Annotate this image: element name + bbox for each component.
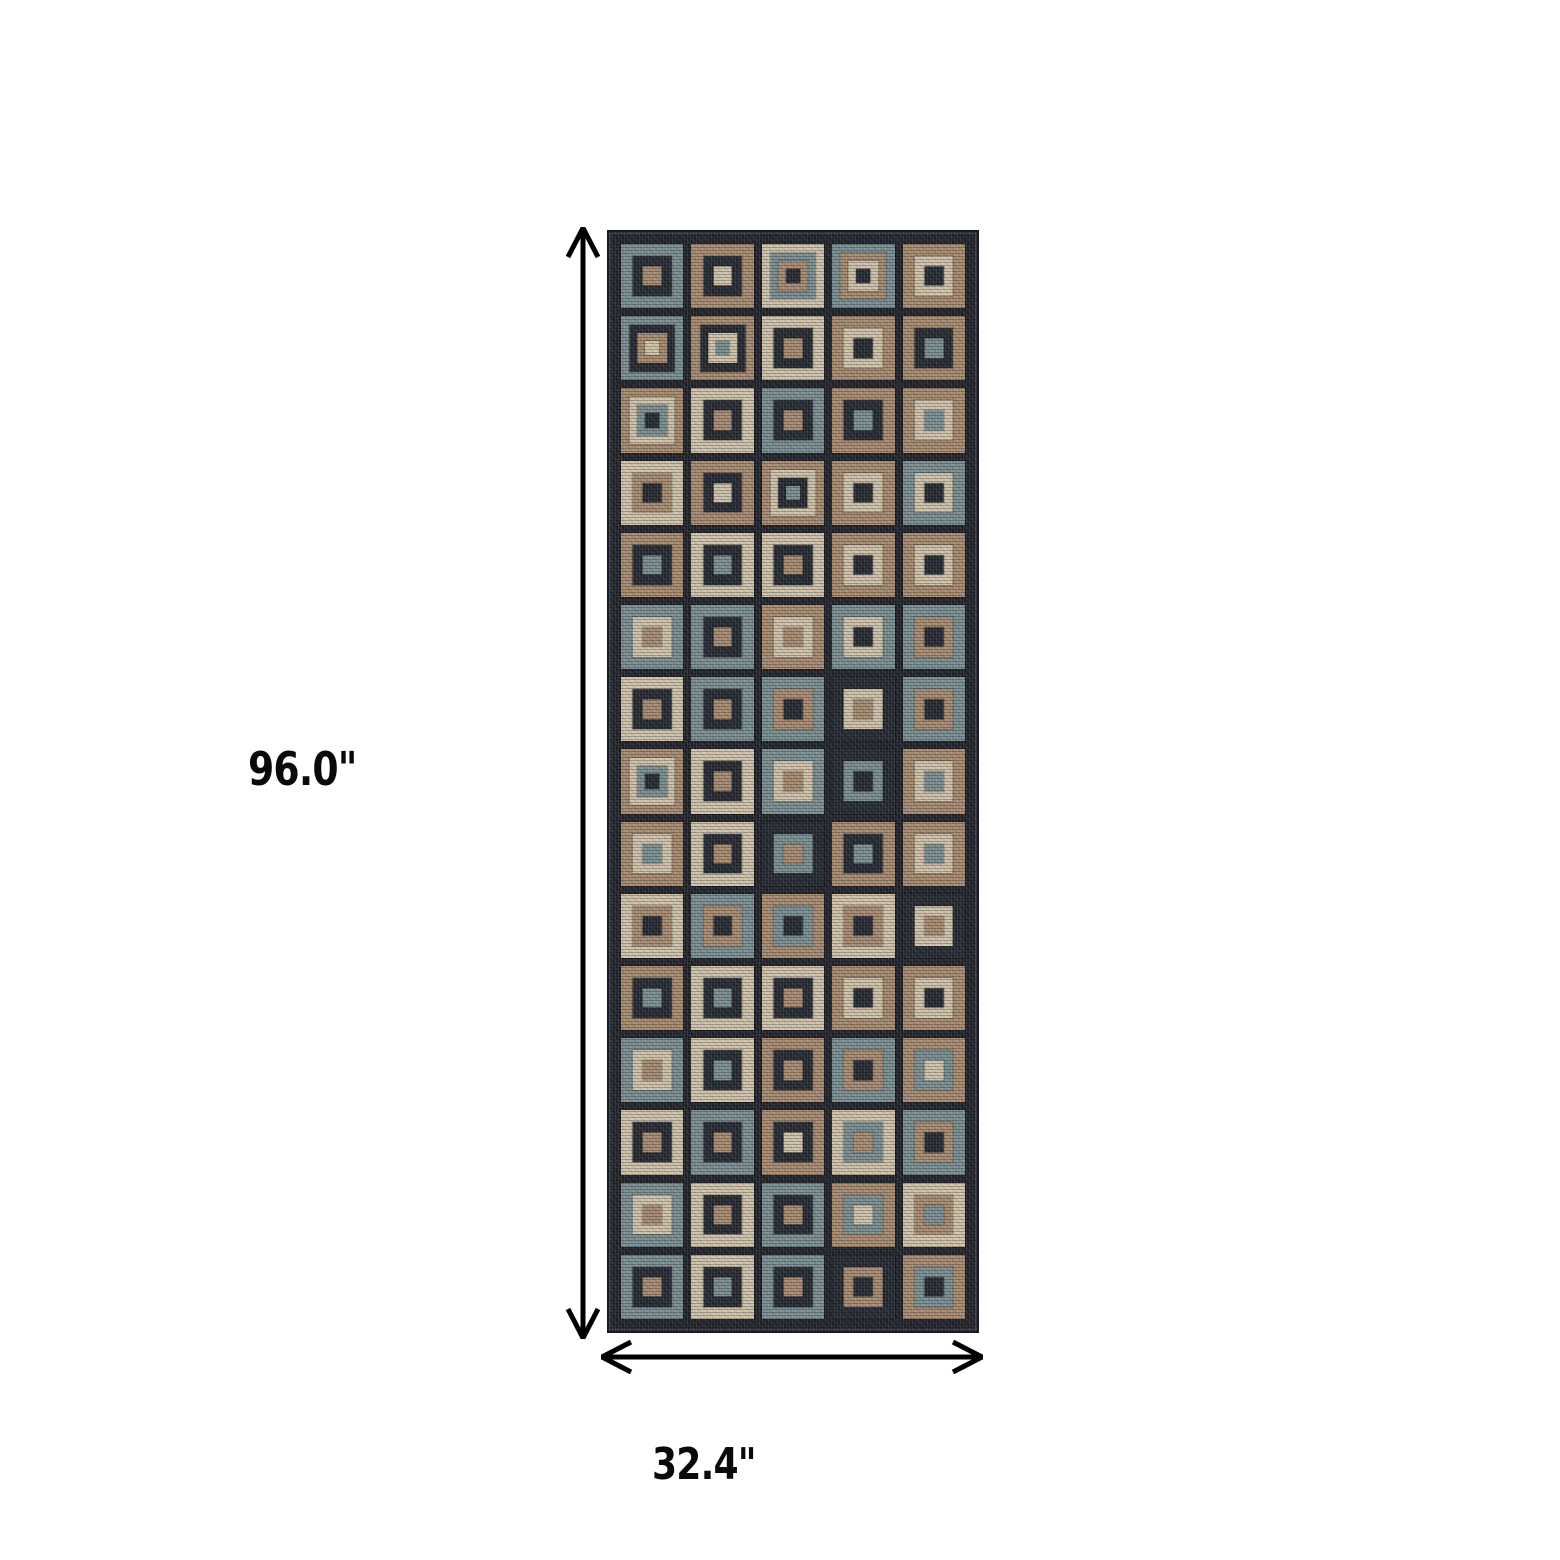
- rug-cell: [691, 749, 753, 813]
- rug-cell: [691, 244, 753, 308]
- rug-cell-inner-square: [924, 1133, 943, 1152]
- rug-cell: [832, 1255, 894, 1319]
- rug-cell: [691, 1038, 753, 1102]
- rug-cell-inner-square: [924, 1277, 943, 1296]
- rug-cell: [903, 677, 965, 741]
- rug-cell: [691, 1183, 753, 1247]
- rug-cell: [832, 388, 894, 452]
- rug-cell-inner-square: [854, 1205, 873, 1224]
- rug-cell-inner-square: [854, 988, 873, 1007]
- rug-cell: [762, 822, 824, 886]
- rug-cell-inner-square: [643, 1205, 662, 1224]
- rug-cell: [621, 1110, 683, 1174]
- rug-cell-inner-square: [643, 700, 662, 719]
- rug-cell-inner-square: [784, 555, 803, 574]
- rug-cell-inner-square: [786, 269, 800, 283]
- rug-cell: [832, 1183, 894, 1247]
- rug-cell: [621, 1038, 683, 1102]
- rug-cell: [621, 388, 683, 452]
- rug-cell-inner-square: [784, 1133, 803, 1152]
- rug-cell-inner-square: [713, 844, 732, 863]
- rug-cell: [621, 822, 683, 886]
- rug-cell: [903, 533, 965, 597]
- rug-cell-inner-square: [713, 772, 732, 791]
- rug-cell-inner-square: [645, 341, 659, 355]
- rug-cell-inner-square: [784, 1277, 803, 1296]
- rug-cell: [691, 388, 753, 452]
- rug-cell: [691, 316, 753, 380]
- rug-cell-inner-square: [643, 844, 662, 863]
- rug-cell-inner-square: [643, 988, 662, 1007]
- rug-cell: [832, 605, 894, 669]
- rug-cell: [762, 1183, 824, 1247]
- rug-cell: [903, 388, 965, 452]
- rug-cell: [762, 388, 824, 452]
- height-dimension-label: 96.0": [248, 746, 357, 792]
- rug-cell: [621, 894, 683, 958]
- width-dimension-arrow: [596, 1339, 988, 1375]
- rug-cell-inner-square: [713, 700, 732, 719]
- rug-cell-inner-square: [645, 413, 659, 427]
- rug-cell: [762, 966, 824, 1030]
- rug-cell-inner-square: [924, 772, 943, 791]
- rug-cell-inner-square: [854, 555, 873, 574]
- rug-cell-inner-square: [643, 1277, 662, 1296]
- rug-cell: [621, 1255, 683, 1319]
- rug-cell-inner-square: [645, 774, 659, 788]
- rug-cell: [691, 822, 753, 886]
- rug-cell: [762, 1255, 824, 1319]
- rug-cell-inner-square: [643, 1061, 662, 1080]
- rug-cell-inner-square: [924, 700, 943, 719]
- rug-cell-inner-square: [643, 483, 662, 502]
- rug-cell-inner-square: [643, 916, 662, 935]
- rug-cell-inner-square: [643, 555, 662, 574]
- rug-cell-inner-square: [713, 627, 732, 646]
- rug-cell-inner-square: [924, 555, 943, 574]
- rug-cell-inner-square: [924, 483, 943, 502]
- rug-cell-inner-square: [924, 411, 943, 430]
- rug-cell-inner-square: [713, 1277, 732, 1296]
- rug-cell: [691, 677, 753, 741]
- rug-cell-inner-square: [784, 772, 803, 791]
- rug-cell: [903, 1183, 965, 1247]
- rug-cell: [691, 461, 753, 525]
- rug-cell: [832, 1110, 894, 1174]
- rug-cell: [621, 966, 683, 1030]
- rug-cell-inner-square: [713, 555, 732, 574]
- rug-cell-inner-square: [643, 266, 662, 285]
- rug-cell: [832, 749, 894, 813]
- rug-cell: [621, 461, 683, 525]
- rug-cell-inner-square: [854, 916, 873, 935]
- rug-image: [607, 230, 979, 1333]
- rug-cell-inner-square: [854, 339, 873, 358]
- rug-cell-inner-square: [924, 988, 943, 1007]
- rug-cell: [832, 533, 894, 597]
- rug-cell-inner-square: [784, 411, 803, 430]
- rug-cell: [832, 244, 894, 308]
- rug-cell: [903, 966, 965, 1030]
- rug-cell: [903, 1110, 965, 1174]
- rug-cell: [691, 533, 753, 597]
- rug-cell-inner-square: [713, 1133, 732, 1152]
- rug-cell-inner-square: [784, 627, 803, 646]
- rug-cell-inner-square: [854, 411, 873, 430]
- product-dimension-diagram: 96.0" 32.4": [0, 0, 1560, 1560]
- rug-cell: [691, 894, 753, 958]
- rug-cell: [621, 1183, 683, 1247]
- rug-cell: [903, 316, 965, 380]
- rug-cell: [903, 822, 965, 886]
- rug-cell-inner-square: [784, 700, 803, 719]
- rug-cell-inner-square: [854, 1133, 873, 1152]
- rug-cell: [762, 244, 824, 308]
- rug-cell-inner-square: [924, 844, 943, 863]
- rug-cell: [903, 1038, 965, 1102]
- rug-cell: [903, 894, 965, 958]
- rug-cell: [621, 316, 683, 380]
- rug-cell: [903, 1255, 965, 1319]
- rug-cell-inner-square: [713, 988, 732, 1007]
- rug-cell-inner-square: [784, 988, 803, 1007]
- rug-cell-inner-square: [854, 844, 873, 863]
- rug-cell-inner-square: [854, 772, 873, 791]
- rug-cell-inner-square: [924, 1061, 943, 1080]
- rug-cell: [621, 677, 683, 741]
- rug-cell: [832, 966, 894, 1030]
- width-dimension-label: 32.4": [652, 1443, 756, 1487]
- rug-cell: [903, 244, 965, 308]
- rug-cell: [691, 966, 753, 1030]
- rug-cell-inner-square: [924, 1205, 943, 1224]
- rug-cell: [762, 1038, 824, 1102]
- rug-cell: [832, 1038, 894, 1102]
- height-dimension-arrow: [565, 222, 601, 1344]
- rug-cell: [903, 605, 965, 669]
- rug-cell: [621, 605, 683, 669]
- rug-cell: [762, 1110, 824, 1174]
- rug-cell-inner-square: [854, 700, 873, 719]
- rug-cell-inner-square: [716, 341, 730, 355]
- rug-cell: [762, 461, 824, 525]
- rug-cell: [762, 533, 824, 597]
- rug-cell-inner-square: [786, 486, 800, 500]
- rug-cell-inner-square: [854, 483, 873, 502]
- rug-cell-inner-square: [784, 1061, 803, 1080]
- rug-cell: [832, 822, 894, 886]
- rug-cell: [832, 894, 894, 958]
- rug-cell: [762, 749, 824, 813]
- rug-cell-inner-square: [854, 1061, 873, 1080]
- rug-cell-inner-square: [713, 266, 732, 285]
- rug-cell-inner-square: [713, 1205, 732, 1224]
- rug-cell-inner-square: [784, 1205, 803, 1224]
- rug-cell: [762, 316, 824, 380]
- rug-cell: [832, 461, 894, 525]
- rug-cell-inner-square: [924, 339, 943, 358]
- rug-cell-inner-square: [784, 916, 803, 935]
- rug-cell: [691, 1255, 753, 1319]
- rug-cell: [691, 1110, 753, 1174]
- rug-cell: [621, 533, 683, 597]
- rug-cell-inner-square: [713, 1061, 732, 1080]
- rug-cell: [762, 894, 824, 958]
- rug-cell-inner-square: [784, 339, 803, 358]
- rug-cell-inner-square: [713, 483, 732, 502]
- rug-cell: [621, 749, 683, 813]
- rug-cell: [621, 244, 683, 308]
- rug-cell-inner-square: [643, 1133, 662, 1152]
- rug-cell-inner-square: [713, 916, 732, 935]
- rug-cell-inner-square: [854, 627, 873, 646]
- rug-cell-inner-square: [924, 266, 943, 285]
- rug-cell: [903, 749, 965, 813]
- rug-cell: [903, 461, 965, 525]
- rug-cell-inner-square: [713, 411, 732, 430]
- rug-cell: [762, 677, 824, 741]
- rug-cell-inner-square: [924, 627, 943, 646]
- rug-cell-inner-square: [857, 269, 871, 283]
- rug-cell-inner-square: [784, 844, 803, 863]
- rug-cell-inner-square: [643, 627, 662, 646]
- rug-cell: [762, 605, 824, 669]
- rug-cell: [691, 605, 753, 669]
- rug-cell: [832, 677, 894, 741]
- rug-cell: [832, 316, 894, 380]
- rug-cell-inner-square: [854, 1277, 873, 1296]
- rug-cell-inner-square: [924, 916, 943, 935]
